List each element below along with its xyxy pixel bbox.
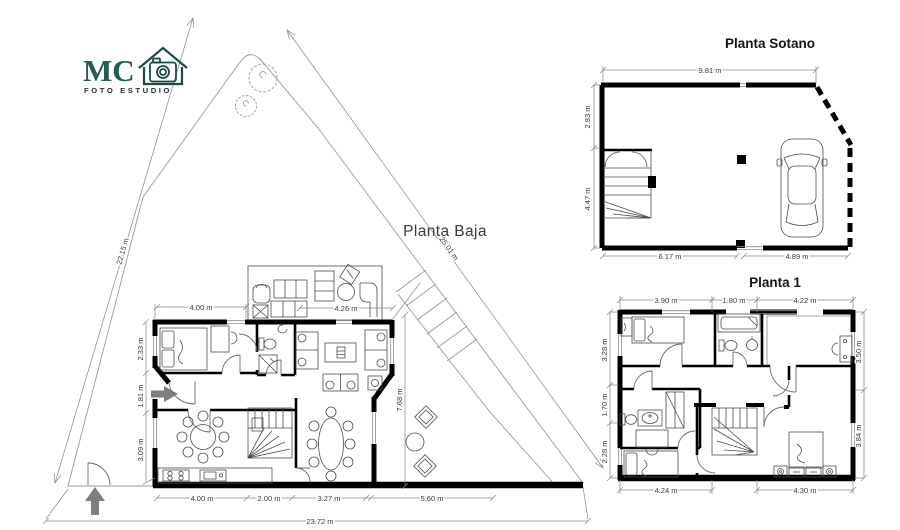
dim-label: 1.80 m — [723, 296, 746, 305]
floorplan-svg: 22.15 m 25.01 m 23.72 m — [0, 0, 900, 530]
terrace-corner-sofa — [360, 283, 377, 317]
p1-bathroom-mid — [620, 392, 684, 428]
column — [737, 155, 746, 164]
dim-label: 4.47 m — [583, 188, 592, 211]
dim-label: 2.00 m — [258, 494, 281, 503]
lot-dim-bottom: 23.72 m — [43, 487, 591, 526]
plan-planta-sotano: Planta Sotano — [583, 36, 851, 261]
terrace-bench — [315, 271, 334, 301]
plan-title: Planta Sotano — [725, 36, 815, 51]
terrace-sofa — [274, 280, 307, 298]
p1-bedroom-topleft — [621, 317, 684, 343]
dim-label: 3.28 m — [600, 339, 609, 362]
dim-label: 2.83 m — [583, 106, 592, 129]
dim-label: 3.84 m — [854, 425, 863, 448]
p1-bathroom-top — [718, 314, 760, 351]
plan-title: Planta Baja — [403, 223, 487, 240]
gate — [88, 463, 110, 485]
dim-label: 1.81 m — [136, 385, 145, 408]
p1-interior-walls — [620, 314, 853, 478]
lot-boundary — [68, 55, 583, 486]
dim-label: 23.72 m — [306, 517, 333, 526]
terrace-chair-tilted — [340, 264, 360, 284]
dim-label: 4.30 m — [794, 486, 817, 495]
dim-label: 4.26 m — [335, 304, 358, 313]
dim-label: 2.28 m — [600, 441, 609, 464]
dim-label: 7.68 m — [395, 389, 404, 412]
dim-label: 4.24 m — [655, 486, 678, 495]
dimensions-sotano: 9.81 m 2.83 m 4.47 m 6.17 m 4.89 m — [583, 66, 851, 261]
plan-title: Planta 1 — [749, 275, 801, 290]
plan-planta-1: Planta 1 — [600, 275, 867, 495]
dim-label: 4.00 m — [191, 494, 214, 503]
terrace-round-table — [338, 284, 355, 301]
stairs — [248, 408, 292, 458]
dim-label: 9.81 m — [699, 66, 722, 75]
dim-label: 2.33 m — [136, 338, 145, 361]
dim-label: 3.09 m — [136, 439, 145, 462]
dim-label: 22.15 m — [114, 237, 130, 266]
logo-initials: MC — [83, 53, 135, 88]
living-room — [296, 330, 387, 391]
dim-label: 3.90 m — [655, 296, 678, 305]
terrace — [248, 264, 382, 320]
dim-label: 6.17 m — [659, 252, 682, 261]
car-icon — [777, 139, 827, 237]
p1-stairs — [712, 408, 757, 455]
dimensions-baja: 4.00 m 4.26 m 2.33 m 1.81 m 3.09 m 7.68 … — [136, 303, 496, 503]
logo: MC FOTO ESTUDIO — [83, 48, 187, 95]
terrace-sofa-2 — [271, 301, 307, 317]
plan-planta-baja: Planta Baja — [136, 223, 583, 503]
terrace-armchair — [253, 284, 270, 303]
dim-label: 3.50 m — [854, 341, 863, 364]
logo-house-camera-icon — [139, 48, 187, 84]
terrace-side-table — [253, 305, 268, 318]
exterior-steps — [392, 270, 556, 486]
lot-dim-diagonal: 25.01 m — [287, 30, 603, 468]
sotano-walls — [601, 84, 851, 250]
logo-subtitle: FOTO ESTUDIO — [84, 86, 172, 95]
p1-room-topright — [767, 316, 852, 364]
dim-label: 1.70 m — [600, 394, 609, 417]
dim-label: 4.00 m — [190, 303, 213, 312]
dim-label: 3.27 m — [318, 494, 341, 503]
interior-walls — [157, 322, 297, 485]
site-entrance-arrow-icon — [85, 487, 105, 515]
bedroom — [160, 326, 237, 370]
dim-label: 4.89 m — [786, 252, 809, 261]
patio-loungers — [406, 406, 437, 478]
dim-label: 4.22 m — [794, 296, 817, 305]
bathroom — [259, 325, 287, 373]
floorplan-sheet: 22.15 m 25.01 m 23.72 m — [0, 0, 900, 530]
exterior-walls — [153, 320, 583, 487]
dining-room — [307, 407, 355, 481]
dim-label: 5.60 m — [421, 494, 444, 503]
sotano-stairs — [602, 150, 656, 218]
p1-master-bedroom — [774, 432, 836, 477]
